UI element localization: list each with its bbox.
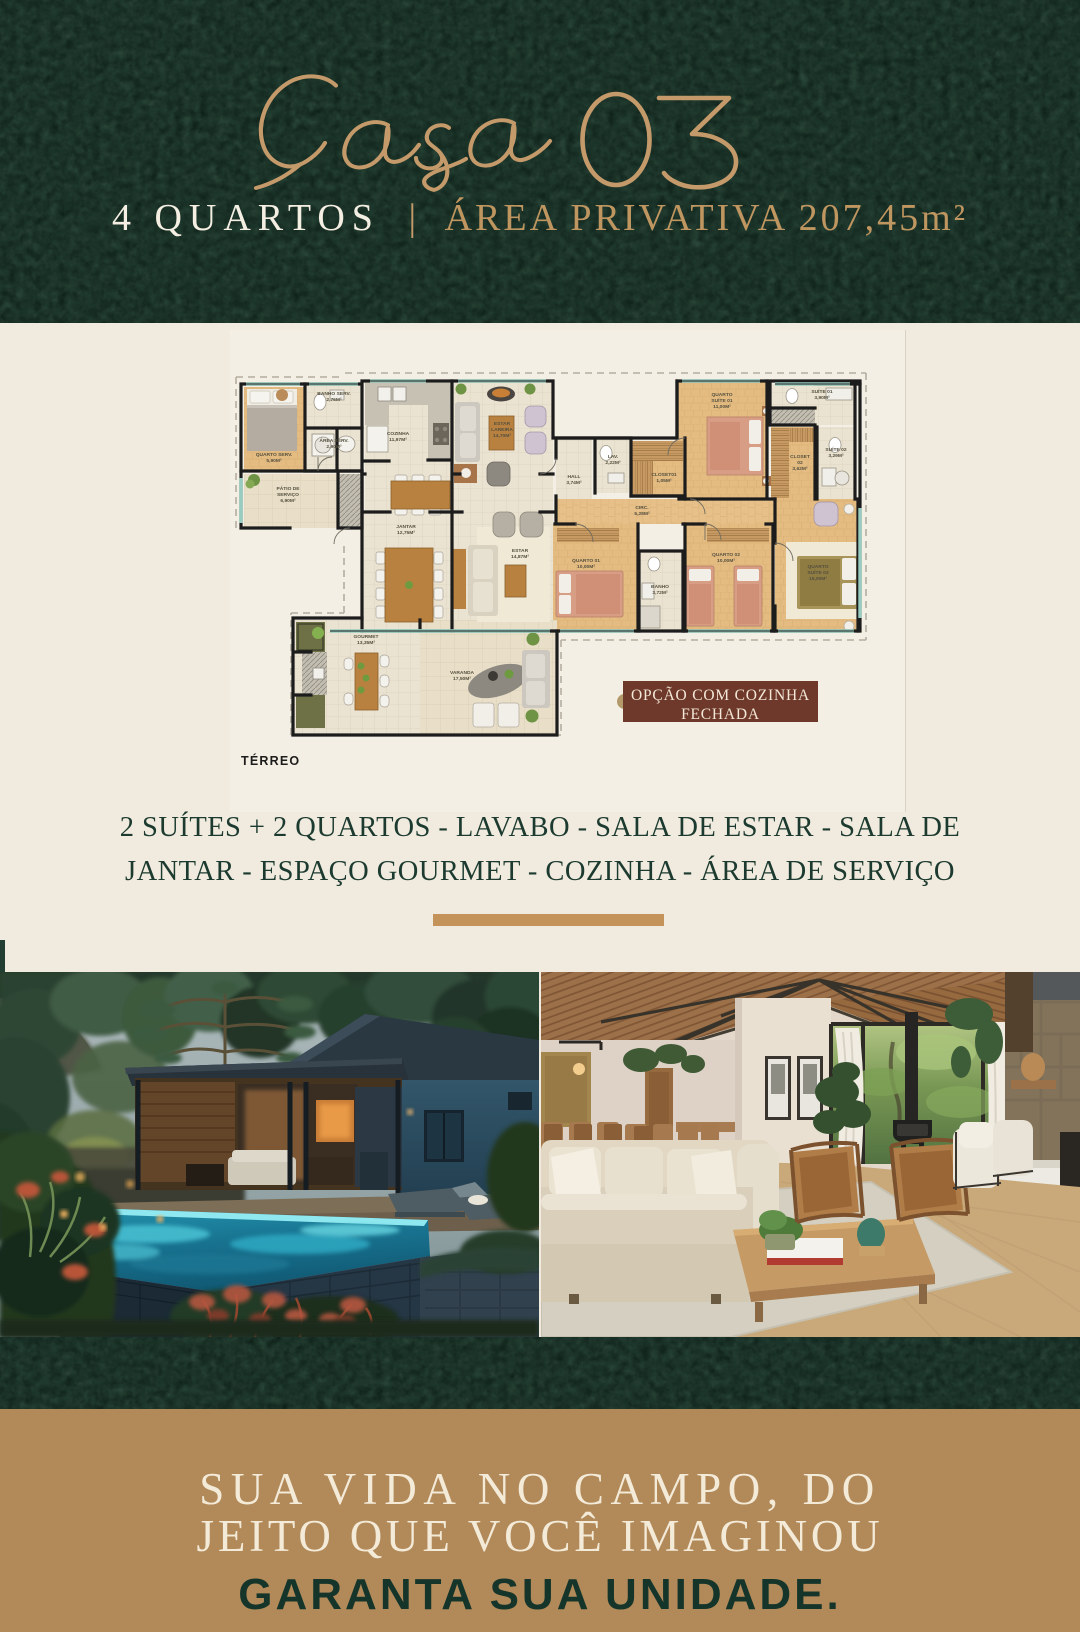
svg-text:10,00M²: 10,00M² <box>717 558 735 564</box>
svg-text:14,87M²: 14,87M² <box>511 554 529 560</box>
svg-text:LAREIRA: LAREIRA <box>491 427 513 433</box>
svg-text:3,29M²: 3,29M² <box>828 453 844 459</box>
svg-text:GOURMET: GOURMET <box>354 634 379 640</box>
svg-text:17,50M²: 17,50M² <box>453 676 471 682</box>
svg-text:PÁTIO DE: PÁTIO DE <box>276 485 300 492</box>
svg-text:6,90M²: 6,90M² <box>280 498 296 504</box>
svg-text:1,05M²: 1,05M² <box>656 478 672 484</box>
svg-text:02: 02 <box>797 460 803 466</box>
svg-text:QUARTO: QUARTO <box>711 392 732 398</box>
svg-text:ESTAR: ESTAR <box>494 421 511 427</box>
svg-text:CIRC.: CIRC. <box>635 505 649 511</box>
svg-text:2,76M²: 2,76M² <box>326 397 342 403</box>
svg-text:QUARTO SERV.: QUARTO SERV. <box>256 452 293 458</box>
svg-text:JANTAR: JANTAR <box>396 524 416 530</box>
svg-text:CLOSET: CLOSET <box>790 454 810 460</box>
svg-text:5,28M²: 5,28M² <box>634 511 650 517</box>
svg-text:VARANDA: VARANDA <box>450 670 475 676</box>
svg-text:ESTAR: ESTAR <box>512 548 529 554</box>
svg-text:QUARTO: QUARTO <box>807 564 828 570</box>
svg-text:QUARTO 01: QUARTO 01 <box>572 558 600 564</box>
svg-text:5,90M²: 5,90M² <box>266 458 282 464</box>
svg-text:ÁREA SERV.: ÁREA SERV. <box>319 437 349 444</box>
svg-text:BANHO: BANHO <box>651 584 669 590</box>
svg-text:HALL: HALL <box>567 474 580 480</box>
svg-text:14,70M²: 14,70M² <box>493 433 511 439</box>
svg-text:11,97M²: 11,97M² <box>389 437 407 443</box>
svg-text:LAV.: LAV. <box>608 454 619 460</box>
svg-text:SERVIÇO: SERVIÇO <box>277 492 299 498</box>
svg-text:11,00M²: 11,00M² <box>713 404 731 410</box>
svg-text:2,90M²: 2,90M² <box>326 444 342 450</box>
svg-text:QUARTO 02: QUARTO 02 <box>712 552 740 558</box>
svg-text:3,72M²: 3,72M² <box>652 590 668 596</box>
svg-text:CLOSET01: CLOSET01 <box>651 472 677 478</box>
svg-text:2,22M²: 2,22M² <box>605 460 621 466</box>
svg-text:3,90M²: 3,90M² <box>814 395 830 401</box>
svg-text:3,74M²: 3,74M² <box>566 480 582 486</box>
svg-text:3,62M²: 3,62M² <box>792 466 808 472</box>
svg-text:BANHO SERV.: BANHO SERV. <box>317 391 351 397</box>
svg-text:10,00M²: 10,00M² <box>577 564 595 570</box>
svg-text:15,00M²: 15,00M² <box>809 576 827 582</box>
svg-text:COZINHA: COZINHA <box>387 431 410 437</box>
svg-text:12,75M²: 12,75M² <box>397 530 415 536</box>
svg-text:13,35M²: 13,35M² <box>357 640 375 646</box>
